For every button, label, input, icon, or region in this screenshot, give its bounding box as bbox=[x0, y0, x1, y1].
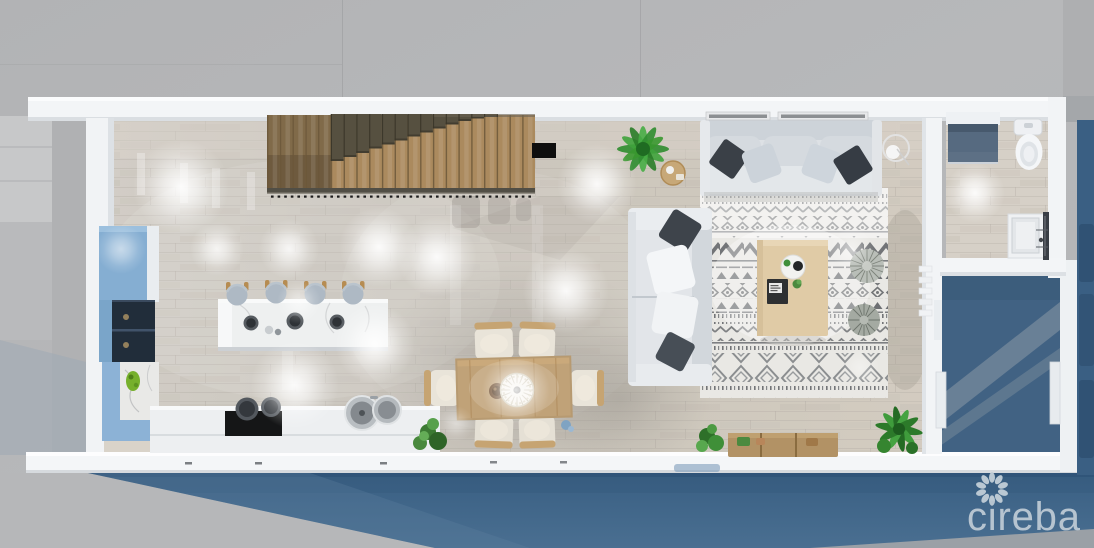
svg-text:cireba: cireba bbox=[967, 495, 1081, 539]
